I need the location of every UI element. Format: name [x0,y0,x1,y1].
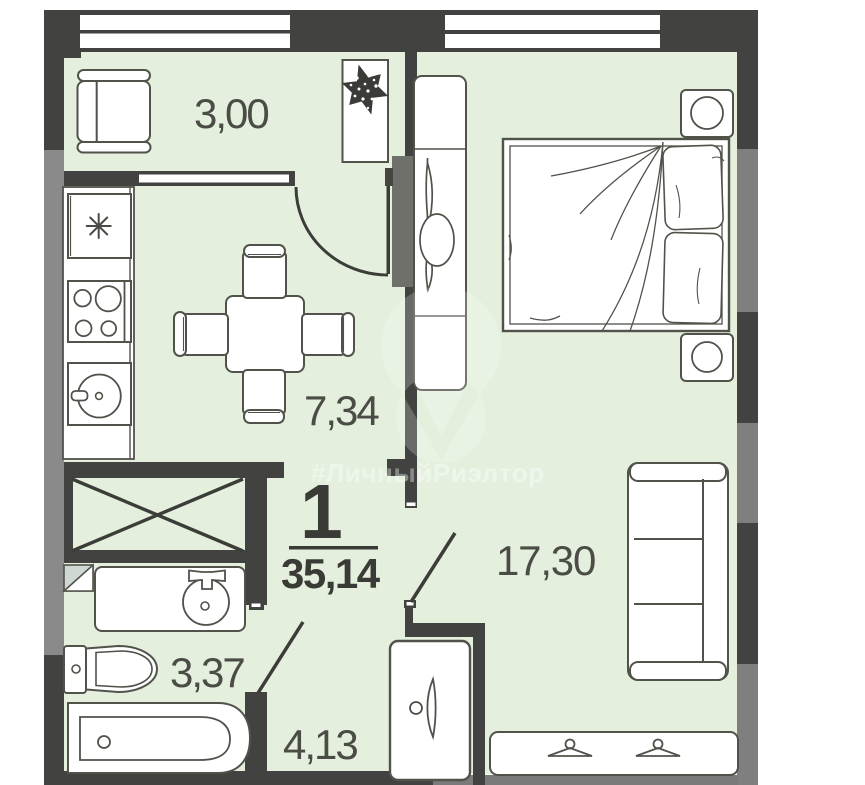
svg-text:3,37: 3,37 [170,649,244,696]
svg-text:3,00: 3,00 [194,90,268,137]
svg-text:17,30: 17,30 [496,537,595,584]
svg-text:#ЛичныйРиэлтор: #ЛичныйРиэлтор [311,458,545,488]
svg-text:35,14: 35,14 [281,550,381,597]
svg-text:4,13: 4,13 [283,721,357,768]
svg-text:7,34: 7,34 [304,387,379,434]
